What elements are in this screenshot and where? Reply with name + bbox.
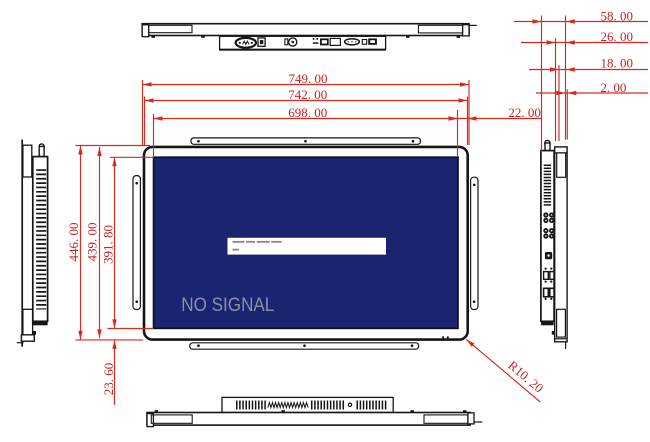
svg-text:NO SIGNAL: NO SIGNAL (181, 294, 274, 316)
svg-text:23. 60: 23. 60 (101, 363, 116, 396)
svg-text:2. 00: 2. 00 (600, 80, 626, 95)
svg-text:439. 00: 439. 00 (84, 223, 99, 262)
svg-text:26. 00: 26. 00 (601, 29, 634, 44)
svg-text:18. 00: 18. 00 (601, 55, 634, 70)
svg-text:742. 00: 742. 00 (288, 87, 327, 102)
svg-text:22. 00: 22. 00 (508, 105, 541, 120)
svg-text:391. 80: 391. 80 (101, 225, 116, 264)
svg-text:58. 00: 58. 00 (601, 8, 634, 23)
svg-text:698. 00: 698. 00 (288, 105, 327, 120)
svg-text:749. 00: 749. 00 (289, 71, 328, 86)
svg-text:446. 00: 446. 00 (66, 223, 81, 262)
